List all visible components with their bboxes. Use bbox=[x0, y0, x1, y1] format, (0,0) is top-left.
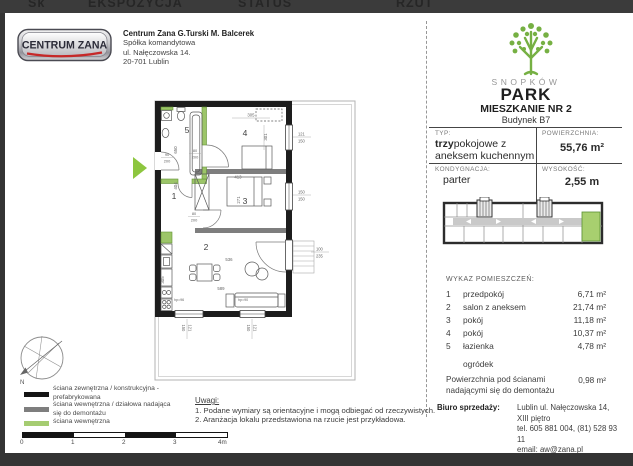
top-bar-fragment: Sk bbox=[28, 0, 45, 10]
room-row-garden: ogródek bbox=[446, 359, 606, 369]
demolition-note: Powierzchnia pod ścianami nadającymi się… bbox=[446, 375, 606, 396]
height-value: 2,55 m bbox=[542, 176, 622, 188]
legend-label-structural: ściana zewnętrzna / konstrukcyjna - pref… bbox=[53, 385, 171, 402]
sales-office-phone: tel. 605 881 004, (81) 528 93 11 bbox=[517, 424, 623, 445]
estate-name-main: PARK bbox=[429, 85, 623, 105]
room-name: pokój bbox=[463, 315, 558, 325]
dim-404: 404 bbox=[173, 182, 178, 190]
top-bar-fragment: RZUT bbox=[396, 0, 433, 10]
room-name: pokój bbox=[463, 328, 558, 338]
room-no bbox=[446, 359, 463, 369]
room4-door-height: 200 bbox=[192, 155, 199, 160]
locator-corridor bbox=[453, 218, 587, 225]
room-no: 1 bbox=[446, 289, 463, 299]
legend-swatch-interior bbox=[24, 421, 49, 426]
legend-swatch-structural bbox=[24, 392, 49, 397]
sales-office-email: email: aw@zana.pl bbox=[517, 445, 623, 456]
dim-650: 650 bbox=[173, 146, 178, 154]
top-bar-fragment: STATUS bbox=[238, 0, 292, 10]
window2-width: 150 bbox=[298, 190, 306, 195]
room-number-4: 4 bbox=[243, 128, 248, 138]
top-bar-fragment: EKSPOZYCJA bbox=[88, 0, 183, 10]
room-row: 2salon z aneksem21,74 m² bbox=[446, 302, 606, 312]
spec-divider-top bbox=[429, 127, 622, 128]
bottom-window2-height: 150 bbox=[246, 325, 251, 333]
notes: Uwagi: 1. Podane wymiary są orientacyjne… bbox=[195, 397, 457, 424]
room-area: 10,37 m² bbox=[558, 328, 606, 338]
terrace-steps bbox=[293, 241, 314, 273]
dim-305-kitchen: 305 bbox=[160, 276, 165, 284]
legend-label-demountable: ściana wewnętrzna / działowa nadająca si… bbox=[53, 401, 171, 418]
demolition-text: Powierzchnia pod ścianami nadającymi się… bbox=[446, 375, 562, 396]
spec-divider-vertical bbox=[536, 127, 537, 203]
room-row: 1przedpokój6,71 m² bbox=[446, 289, 606, 299]
legend-label-interior: ściana wewnętrzna bbox=[53, 418, 171, 427]
dim-305-top: 305 bbox=[247, 113, 255, 118]
legend-swatch-demountable bbox=[24, 407, 49, 412]
area-value: 55,76 m² bbox=[542, 142, 622, 154]
north-label: N bbox=[20, 379, 24, 386]
apartment-number: MIESZKANIE NR 2 bbox=[429, 103, 623, 115]
type-value: trzypokojowe z aneksem kuchennym bbox=[435, 138, 535, 162]
scale-tick-4: 4m bbox=[218, 439, 227, 446]
screenshot-root: Sk EKSPOZYCJA STATUS RZUT CENTRUM ZANA bbox=[0, 0, 633, 466]
centrum-zana-logo: CENTRUM ZANA bbox=[17, 28, 112, 64]
height-label: WYSOKOŚĆ: bbox=[542, 166, 585, 173]
dim-271: 271 bbox=[236, 196, 241, 204]
type-label: TYP: bbox=[435, 130, 451, 137]
sales-office-address: Lublin ul. Nałęczowska 14, XIII piętro bbox=[517, 403, 623, 424]
room-name: przedpokój bbox=[463, 289, 558, 299]
scale-tick-3: 3 bbox=[173, 439, 177, 446]
compass: N bbox=[20, 336, 63, 386]
company-type: Spółka komandytowa bbox=[123, 38, 303, 47]
room-list-heading: WYKAZ POMIESZCZEŃ: bbox=[446, 276, 534, 283]
snopkow-tree-logo bbox=[503, 18, 559, 76]
type-value-rest: pokojowe z bbox=[454, 138, 507, 150]
dim-301: 301 bbox=[263, 133, 268, 141]
room-row: 5łazienka4,78 m² bbox=[446, 341, 606, 351]
note-2: 2. Aranżacja lokalu przedstawiona na rzu… bbox=[195, 416, 457, 425]
entrance-arrow bbox=[133, 157, 147, 179]
window2-height: 150 bbox=[298, 197, 306, 202]
building-number: Budynek B7 bbox=[429, 115, 623, 125]
hp-label-2: hp=90 bbox=[238, 298, 248, 302]
entrance-door-height: 200 bbox=[164, 159, 171, 164]
storey-label: KONDYGNACJA: bbox=[435, 166, 490, 173]
floorplan-sheet: CENTRUM ZANA Centrum Zana G.Turski M. Ba… bbox=[5, 13, 633, 453]
scale-tick-0: 0 bbox=[20, 439, 24, 446]
room-name: ogródek bbox=[463, 359, 558, 369]
room-number-5: 5 bbox=[185, 125, 190, 135]
type-value-line2: aneksem kuchennym bbox=[435, 150, 535, 162]
dim-413: 413 bbox=[234, 175, 242, 180]
locator-highlighted-unit bbox=[582, 212, 600, 241]
storey-value: parter bbox=[443, 174, 470, 186]
notes-heading: Uwagi: bbox=[195, 397, 457, 406]
company-address: Centrum Zana G.Turski M. Balcerek Spółka… bbox=[123, 29, 303, 67]
window1-height: 150 bbox=[298, 139, 306, 144]
company-city: 20-701 Lublin bbox=[123, 57, 303, 66]
room-area: 6,71 m² bbox=[558, 289, 606, 299]
area-label: POWIERZCHNIA: bbox=[542, 130, 599, 137]
room-list: 1przedpokój6,71 m² 2salon z aneksem21,74… bbox=[446, 289, 606, 372]
scale-tick-1: 1 bbox=[71, 439, 75, 446]
dim-589: 589 bbox=[217, 286, 225, 291]
balcony-door-width: 100 bbox=[316, 247, 324, 252]
room-no: 3 bbox=[446, 315, 463, 325]
room-row: 4pokój10,37 m² bbox=[446, 328, 606, 338]
bottom-window2-width: 121 bbox=[253, 325, 258, 333]
dim-536: 536 bbox=[225, 257, 233, 262]
room-area: 11,18 m² bbox=[558, 315, 606, 325]
bottom-window1-height: 150 bbox=[181, 325, 186, 333]
window1-width: 121 bbox=[298, 132, 306, 137]
room-number-2: 2 bbox=[204, 242, 209, 252]
panel-separator bbox=[426, 21, 427, 417]
scale-tick-2: 2 bbox=[122, 439, 126, 446]
building-locator-plan bbox=[441, 197, 611, 249]
room-name: łazienka bbox=[463, 341, 558, 351]
bottom-window1-width: 121 bbox=[188, 325, 193, 333]
balcony-door-height: 235 bbox=[316, 254, 324, 259]
demolition-area: 0,98 m² bbox=[562, 375, 606, 396]
room-number-1: 1 bbox=[172, 191, 177, 201]
room-area: 21,74 m² bbox=[558, 302, 606, 312]
logo-text: CENTRUM ZANA bbox=[22, 40, 108, 52]
room-number-3: 3 bbox=[243, 196, 248, 206]
type-value-bold: trzy bbox=[435, 138, 454, 150]
scale-bar bbox=[22, 432, 228, 438]
room-area bbox=[558, 359, 606, 369]
room3-door-height: 200 bbox=[191, 218, 198, 223]
room-name: salon z aneksem bbox=[463, 302, 558, 312]
room-no: 2 bbox=[446, 302, 463, 312]
room-no: 4 bbox=[446, 328, 463, 338]
company-name: Centrum Zana G.Turski M. Balcerek bbox=[123, 29, 303, 38]
company-street: ul. Nałęczowska 14. bbox=[123, 48, 303, 57]
room-no: 5 bbox=[446, 341, 463, 351]
viewer-top-bar: Sk EKSPOZYCJA STATUS RZUT bbox=[0, 0, 633, 13]
room-area: 4,78 m² bbox=[558, 341, 606, 351]
spec-divider-mid bbox=[429, 163, 622, 164]
floor-plan: 5 4 1 3 2 305 301 413 271 536 589 305 65… bbox=[16, 72, 426, 402]
sales-office: Biuro sprzedaży: Lublin ul. Nałęczowska … bbox=[437, 403, 623, 456]
room-row: 3pokój11,18 m² bbox=[446, 315, 606, 325]
hp-label-1: hp=96 bbox=[174, 298, 184, 302]
apartment-floor bbox=[155, 101, 292, 317]
